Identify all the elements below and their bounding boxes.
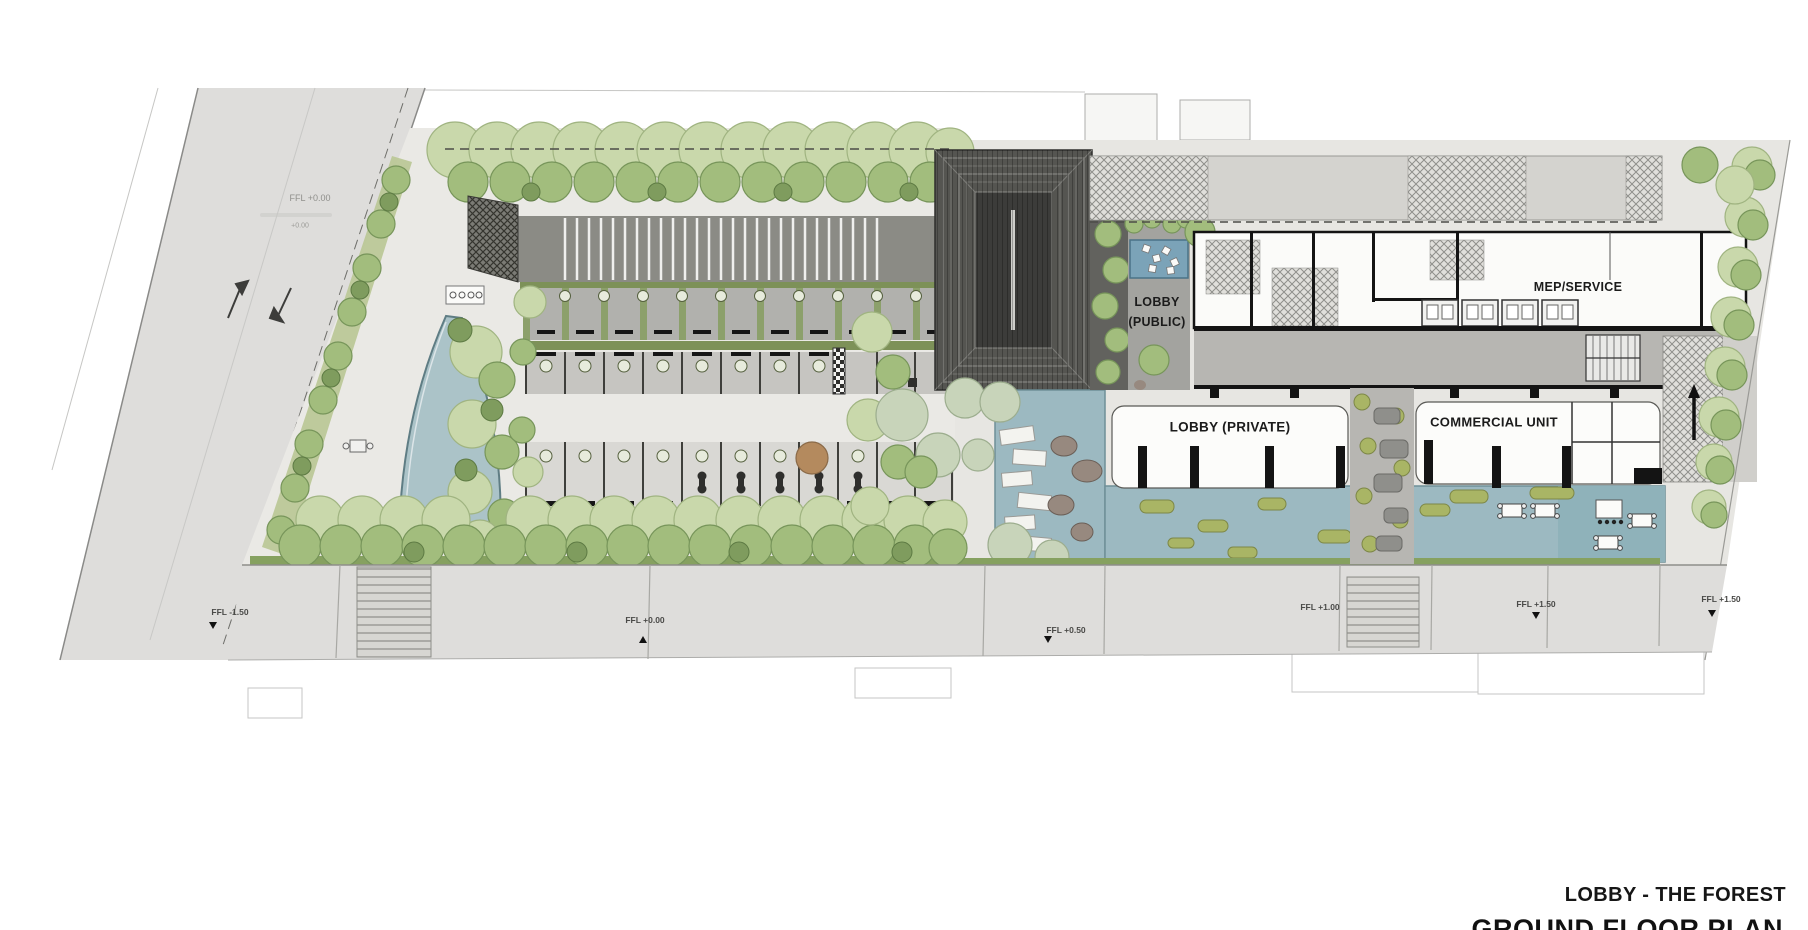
ffl-label-000: FFL +0.00 [625, 615, 664, 625]
ffl-label-minus150: FFL -1.50 [211, 607, 248, 617]
lobby-private-box [1112, 406, 1348, 488]
sidewalk [209, 565, 1727, 660]
illegible-annotation [260, 213, 332, 217]
mep-service-label: MEP/SERVICE [1534, 280, 1623, 294]
sheet-title: GROUND FLOOR PLAN [1472, 914, 1784, 930]
road-level-label: FFL +0.00 [290, 193, 331, 203]
accent-tree [796, 442, 828, 474]
road-level-note: +0.00 [291, 223, 309, 230]
project-title: LOBBY - THE FOREST [1565, 884, 1786, 907]
stairs-east [1347, 577, 1419, 647]
stairs-west [357, 567, 431, 657]
ffl-label-150a: FFL +1.50 [1516, 599, 1555, 609]
lobby-private-label: LOBBY (PRIVATE) [1170, 420, 1291, 435]
ffl-label-100: FFL +1.00 [1300, 602, 1339, 612]
commercial-unit-label: COMMERCIAL UNIT [1430, 415, 1558, 430]
ffl-label-050: FFL +0.50 [1046, 625, 1085, 635]
pavilion-roof [935, 150, 1092, 390]
lobby-public-label-line2: (PUBLIC) [1128, 315, 1185, 329]
garden-path [1350, 388, 1414, 564]
ffl-label-150b: FFL +1.50 [1701, 594, 1740, 604]
lobby-public-label-line1: LOBBY [1134, 295, 1179, 309]
ground-floor-plan-sheet: LOBBY (PUBLIC) MEP/SERVICE LOBBY (PRIVAT… [0, 0, 1808, 930]
cabana [1596, 500, 1622, 518]
site-plan-drawing [0, 0, 1808, 930]
stair-core [1586, 335, 1640, 381]
